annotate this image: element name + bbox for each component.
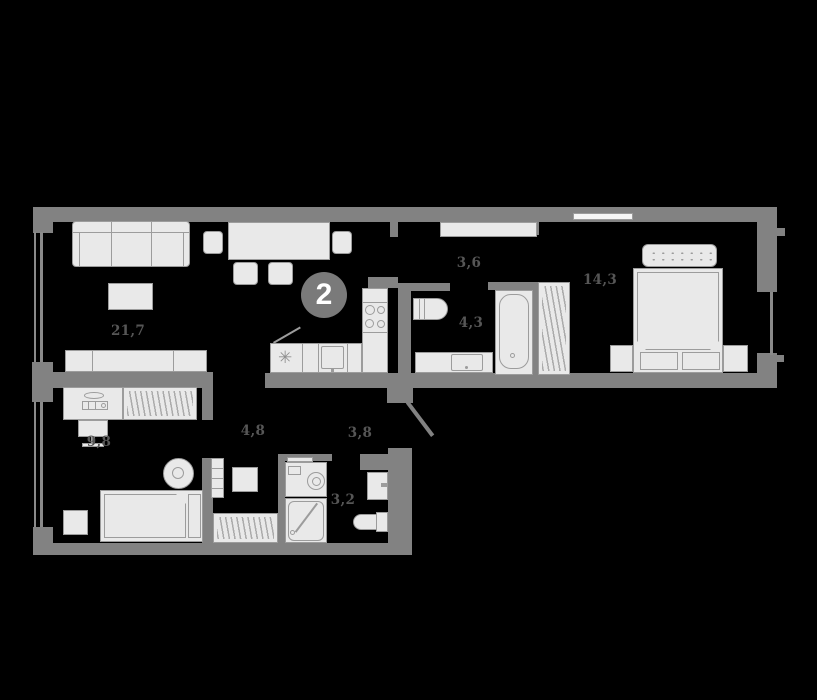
- window-left-upper-line2: [40, 232, 43, 362]
- sideboard: [65, 350, 207, 372]
- single-bed-mattress: [104, 494, 186, 538]
- room-label-bedroom-second: 9,8: [87, 434, 111, 450]
- sofa-back-line: [73, 232, 189, 233]
- kitchen-divider-3: [347, 344, 348, 372]
- stove-bottom-line: [363, 332, 387, 333]
- bathtub-drain: [510, 353, 515, 358]
- window-bedroom-top: [573, 213, 633, 220]
- wall-kitchen-stub: [368, 277, 398, 288]
- kitchen-sink: [321, 346, 344, 369]
- dining-chair-bottom-2: [268, 262, 293, 285]
- stove-burner-3: [365, 319, 374, 328]
- stove-top-line: [363, 302, 387, 303]
- wall-bottom-lower-wing: [33, 543, 412, 555]
- hall-stool: [232, 467, 258, 492]
- washing-machine-second-top: [287, 457, 313, 462]
- wall-room98-hall-upper: [202, 387, 213, 420]
- washer-door-inner: [312, 477, 321, 486]
- room-label-entry-corridor: 3,8: [348, 425, 372, 441]
- stove-burner-1: [365, 305, 375, 315]
- sideboard-divider-2: [173, 351, 174, 371]
- window-left-lower-line1: [34, 402, 36, 527]
- toilet-tank: [376, 512, 388, 532]
- wall-bath43-top-left: [398, 283, 450, 291]
- kitchen-cabinet-door-line: [273, 327, 301, 344]
- wardrobe-hall48: [213, 513, 278, 543]
- room-label-bedroom-main: 14,3: [583, 272, 617, 288]
- desk-mouse: [84, 392, 104, 399]
- wall-bottom-upper-wing: [265, 373, 777, 388]
- room-label-hallway-lower: 4,8: [241, 423, 265, 439]
- wardrobe-bedroom: [538, 282, 570, 375]
- sofa: [72, 221, 190, 267]
- floor-plan: ✳: [0, 0, 817, 700]
- toilet-bowl: [353, 514, 377, 530]
- entry-door-leaf: [406, 401, 434, 437]
- sofa-divider-2: [151, 222, 152, 266]
- room-label-bathroom-second: 3,2: [331, 492, 355, 508]
- sofa-divider-1: [111, 222, 112, 266]
- washing-machine-main-line2: [424, 299, 425, 319]
- wall-bath43-top-right: [488, 282, 533, 290]
- bath32-sink-faucet: [381, 483, 387, 487]
- wall-hall36-stub: [390, 218, 398, 237]
- bathtub-inner: [499, 294, 529, 369]
- washing-machine-main-line1: [419, 299, 420, 319]
- window-left-upper-line1: [34, 232, 36, 362]
- wall-top-right-pillar: [757, 207, 777, 292]
- fridge-snowflake-icon: ✳: [278, 350, 292, 367]
- dining-chair-right: [332, 231, 352, 254]
- keyboard-key-line2: [95, 402, 96, 409]
- dining-chair-left: [203, 231, 223, 254]
- nightstand-room98: [63, 510, 88, 535]
- coffee-table: [108, 283, 153, 310]
- wall-left-middle: [32, 362, 53, 402]
- wall-bath43-left: [398, 283, 411, 373]
- bed-drawer-left: [640, 352, 678, 370]
- keyboard-knob: [101, 403, 106, 408]
- wall-nub-bottom-right: [769, 355, 784, 362]
- keyboard-key-line1: [88, 402, 89, 409]
- nightstand-left: [610, 345, 633, 372]
- dining-table: [228, 222, 330, 260]
- dining-chair-bottom-1: [233, 262, 258, 285]
- wardrobe-room98: [123, 387, 197, 420]
- wall-right-lower-wing: [388, 448, 412, 555]
- shower-drain: [290, 530, 295, 535]
- bed-drawer-right: [682, 352, 720, 370]
- wall-top: [33, 207, 777, 222]
- nightstand-right: [723, 345, 748, 372]
- sofa-armrest-left: [79, 233, 80, 266]
- hall-closet: [440, 222, 537, 237]
- single-bed-headboard: [188, 494, 201, 538]
- window-left-lower-line2: [40, 402, 43, 527]
- wall-nub-top-right: [777, 228, 785, 236]
- headboard-tufting-dots: [648, 249, 712, 264]
- double-bed-mattress: [637, 272, 719, 350]
- hall-shelf-line1: [212, 468, 223, 469]
- vanity-faucet: [465, 366, 468, 369]
- room-label-hallway-top: 3,6: [457, 255, 481, 271]
- stove-burner-2: [377, 306, 385, 314]
- pouf-inner: [172, 467, 184, 479]
- hall-shelf-line2: [212, 478, 223, 479]
- room-label-bathroom-main: 4,3: [459, 315, 483, 331]
- wall-bath32-left: [278, 454, 285, 543]
- stove-burner-4: [377, 320, 385, 328]
- wall-bath32-stub: [360, 454, 390, 470]
- window-right-line: [770, 292, 773, 355]
- room-label-living: 21,7: [111, 323, 145, 339]
- wall-left-top-corner: [33, 207, 53, 233]
- wall-entry-block: [387, 373, 413, 403]
- kitchen-divider-1: [302, 344, 303, 372]
- hall-shelf-line3: [212, 488, 223, 489]
- sideboard-divider-1: [92, 351, 93, 371]
- kitchen-divider-2: [318, 344, 319, 372]
- wall-living-bottom: [53, 372, 213, 388]
- washer-detergent-drawer: [288, 466, 301, 475]
- kitchen-sink-faucet: [331, 368, 334, 373]
- shower-tray: [288, 501, 324, 541]
- sofa-armrest-right: [183, 233, 184, 266]
- kitchen-counter-vertical: [362, 288, 388, 373]
- unit-rooms-badge: 2: [301, 272, 347, 318]
